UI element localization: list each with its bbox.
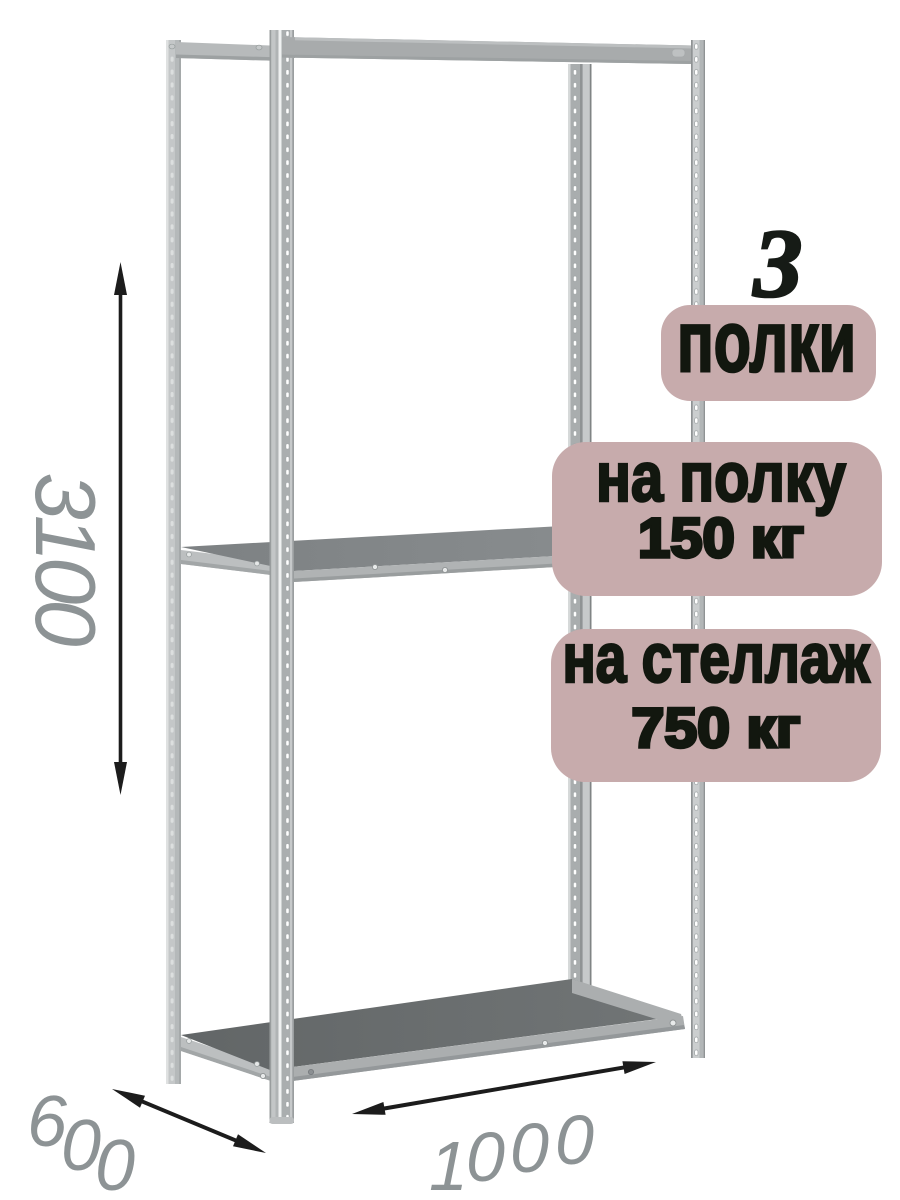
svg-text:на стеллаж: на стеллаж — [563, 619, 871, 697]
svg-text:3100: 3100 — [17, 472, 112, 646]
svg-text:полки: полки — [677, 294, 856, 390]
svg-text:150 кг: 150 кг — [638, 506, 804, 569]
svg-text:на полку: на полку — [596, 438, 846, 516]
svg-text:1000: 1000 — [429, 1101, 594, 1200]
svg-text:750 кг: 750 кг — [632, 696, 801, 759]
svg-text:600: 600 — [27, 1082, 135, 1200]
